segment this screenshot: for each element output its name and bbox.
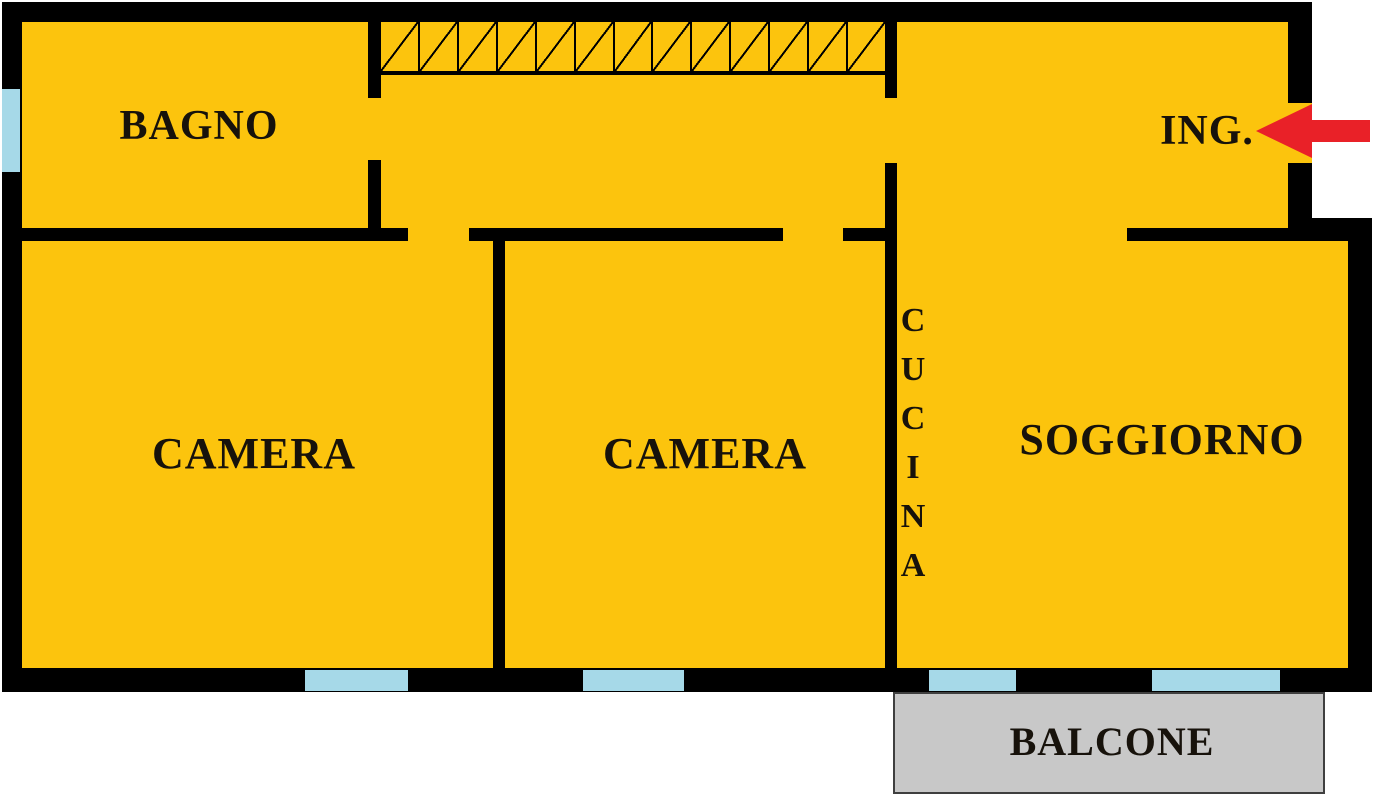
wall-between-cameras [493, 241, 505, 668]
entrance-arrow-head-icon [1256, 104, 1312, 158]
room-label-camera-center: CAMERA [603, 432, 807, 476]
cucina-letter: U [901, 345, 926, 394]
wall-soggiorno-top [1127, 228, 1312, 241]
wall-mid-bagno-bottom [22, 228, 408, 241]
entrance-arrow-icon [1312, 120, 1370, 142]
room-label-ingresso: ING. [1160, 110, 1254, 152]
cucina-letter: C [901, 296, 926, 345]
wall-mid-cameras-top [469, 228, 783, 241]
room-label-camera-left: CAMERA [152, 432, 356, 476]
hatch-cell [651, 22, 690, 71]
hatch-cell [381, 22, 418, 71]
floor-plan: BAGNO ING. CAMERA CAMERA SOGGIORNO BALCO… [0, 0, 1377, 801]
cucina-letter: A [901, 541, 926, 590]
hatch-cell [807, 22, 846, 71]
hatch-cell [574, 22, 613, 71]
window-camera-left [305, 670, 408, 691]
hatch-cell [535, 22, 574, 71]
window-cucina [929, 670, 1016, 691]
hatch-cell [690, 22, 729, 71]
wall-right-lower [1348, 218, 1372, 692]
hatch-cell [496, 22, 535, 71]
hatch-cell [768, 22, 807, 71]
wall-corridor-left-top [885, 22, 897, 98]
cucina-letter: N [901, 492, 926, 541]
hatch-cell [457, 22, 496, 71]
room-label-cucina: C U C I N A [894, 296, 932, 590]
cucina-letter: C [901, 394, 926, 443]
hatch-cell [846, 22, 885, 71]
room-label-bagno: BAGNO [119, 105, 278, 147]
wall-top [2, 2, 1312, 22]
window-bagno-left [2, 89, 20, 172]
room-label-soggiorno: SOGGIORNO [1019, 418, 1304, 462]
room-label-balcone: BALCONE [1010, 722, 1215, 762]
wall-mid-camera2-stub [843, 228, 897, 241]
window-soggiorno [1152, 670, 1280, 691]
window-camera-center [583, 670, 684, 691]
wall-right-upper-above-door [1288, 2, 1312, 103]
wardrobe-hatch [381, 22, 885, 75]
wall-bagno-right-top [368, 22, 381, 98]
cucina-letter: I [906, 443, 919, 492]
hatch-cell [418, 22, 457, 71]
hatch-cell [613, 22, 652, 71]
hatch-cell [729, 22, 768, 71]
